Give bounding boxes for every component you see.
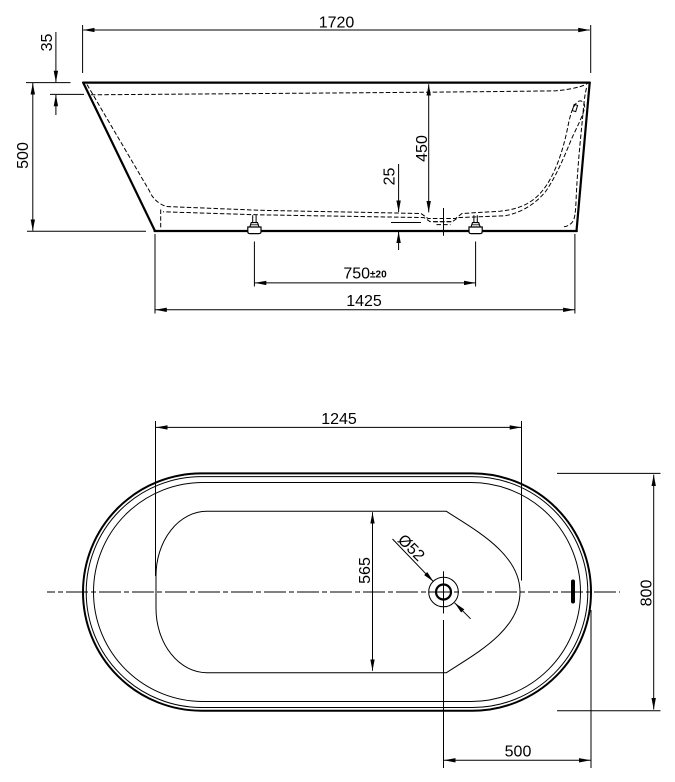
svg-text:565: 565 [357,557,374,584]
svg-text:35: 35 [39,34,56,52]
svg-text:450: 450 [414,135,431,162]
svg-text:1245: 1245 [321,411,357,428]
svg-text:25: 25 [381,168,398,186]
svg-text:800: 800 [639,580,656,607]
svg-text:1720: 1720 [319,15,355,32]
svg-text:1425: 1425 [346,293,382,310]
svg-text:500: 500 [505,744,532,761]
svg-text:500: 500 [15,142,32,169]
